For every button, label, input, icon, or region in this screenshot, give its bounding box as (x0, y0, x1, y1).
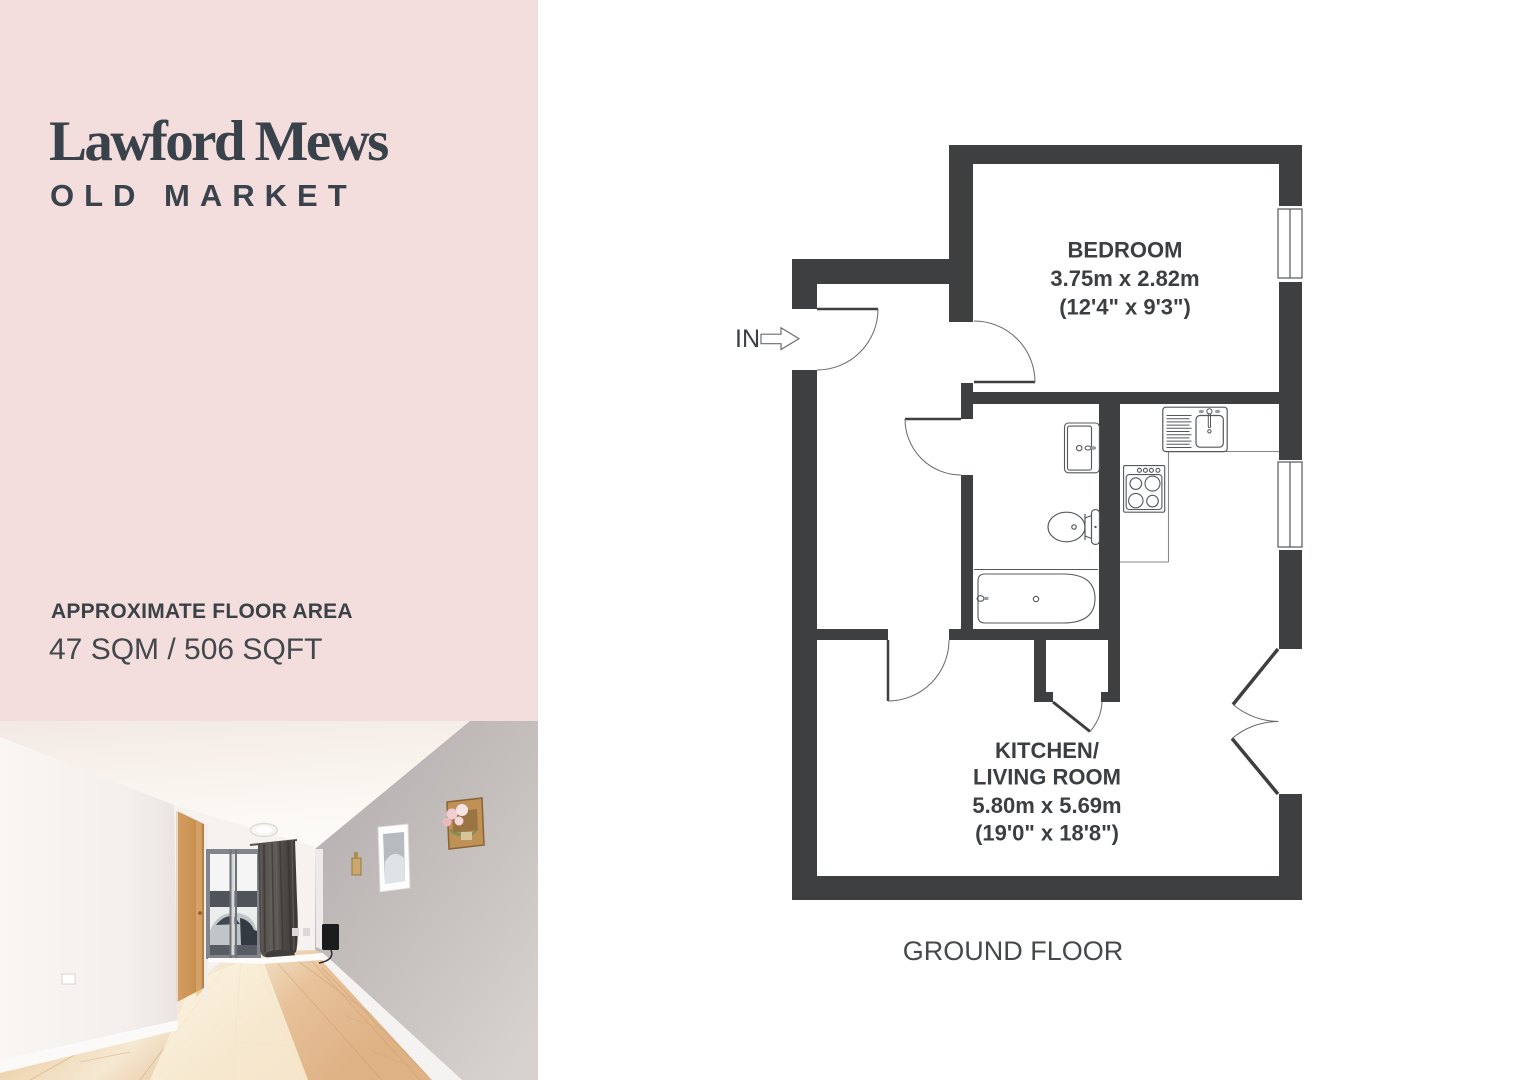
svg-text:(12'4" x 9'3"): (12'4" x 9'3") (1059, 295, 1191, 320)
svg-text:BEDROOM: BEDROOM (1068, 238, 1183, 263)
svg-text:(19'0" x 18'8"): (19'0" x 18'8") (975, 820, 1119, 845)
svg-text:IN: IN (735, 325, 760, 353)
svg-text:KITCHEN/: KITCHEN/ (995, 738, 1099, 763)
svg-text:LIVING ROOM: LIVING ROOM (973, 764, 1121, 789)
svg-text:GROUND FLOOR: GROUND FLOOR (903, 936, 1124, 966)
svg-text:5.80m x 5.69m: 5.80m x 5.69m (972, 793, 1121, 818)
svg-text:3.75m x 2.82m: 3.75m x 2.82m (1050, 266, 1199, 291)
